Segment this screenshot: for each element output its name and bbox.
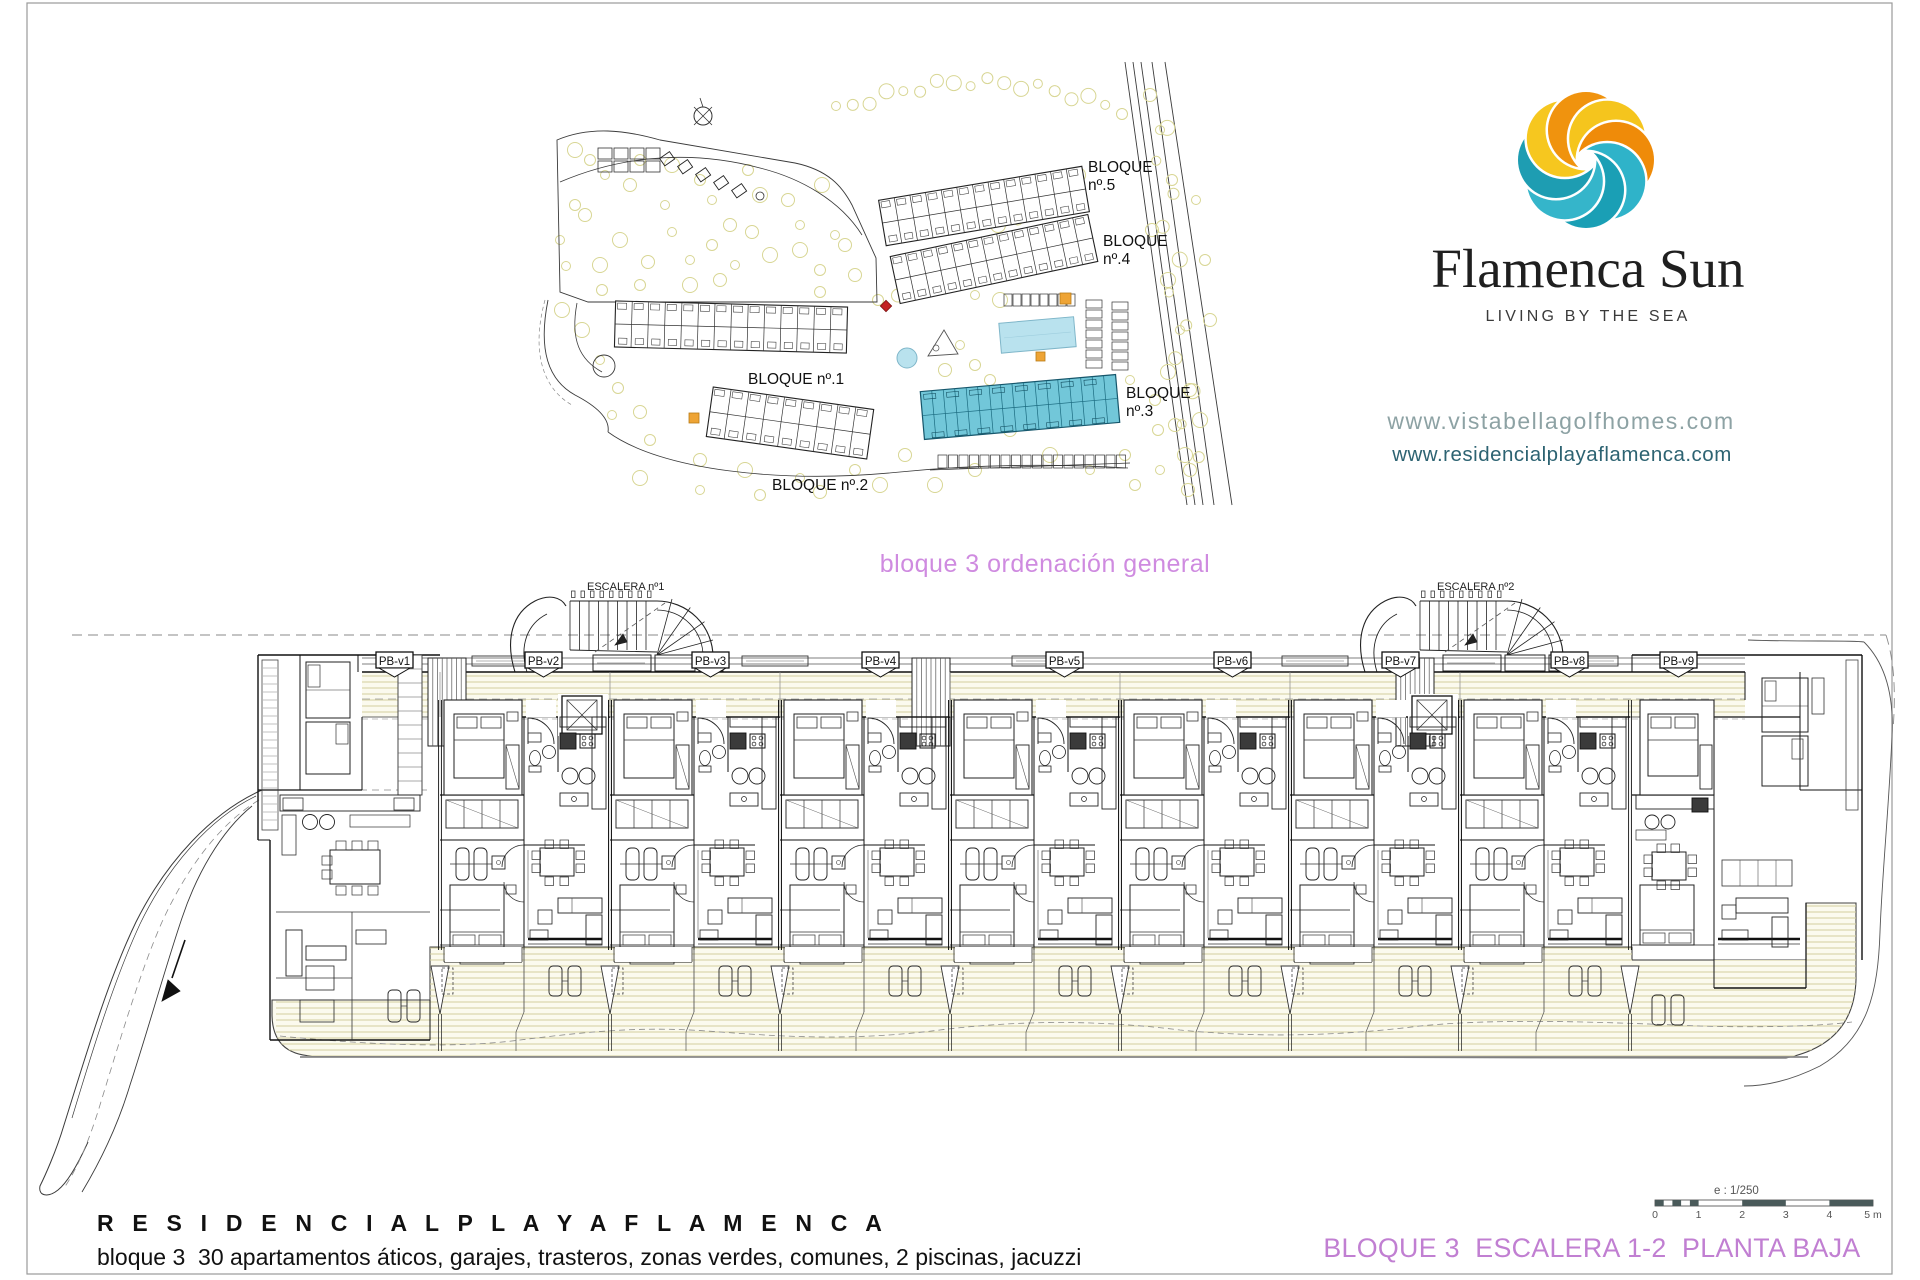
svg-text:0: 0 [1652,1209,1658,1221]
svg-text:5 m: 5 m [1864,1209,1882,1221]
svg-text:BLOQUE: BLOQUE [1126,385,1191,402]
svg-text:PB-v4: PB-v4 [865,656,897,668]
svg-text:www.vistabellagolfhomes.com: www.vistabellagolfhomes.com [1386,408,1734,434]
svg-text:PB-v6: PB-v6 [1217,656,1248,668]
svg-text:PB-v3: PB-v3 [695,656,726,668]
svg-text:PB-v9: PB-v9 [1663,656,1694,668]
svg-text:PB-v1: PB-v1 [379,656,410,668]
svg-text:www.residencialplayaflamenca.c: www.residencialplayaflamenca.com [1391,443,1732,466]
svg-text:2: 2 [1739,1209,1745,1221]
svg-text:BLOQUE 3 ESCALERA 1-2 PLANTA: BLOQUE 3 ESCALERA 1-2 PLANTA BAJA [1323,1233,1860,1263]
svg-text:PB-v5: PB-v5 [1049,656,1080,668]
svg-text:Flamenca Sun: Flamenca Sun [1431,238,1744,299]
svg-text:1: 1 [1696,1209,1702,1221]
svg-text:e : 1/250: e : 1/250 [1714,1185,1759,1197]
svg-text:PB-v7: PB-v7 [1385,656,1416,668]
svg-text:nº.5: nº.5 [1088,177,1115,194]
svg-text:BLOQUE: BLOQUE [1088,159,1153,176]
svg-text:R E S I D E N C I A L P L A: R E S I D E N C I A L P L A Y A F L A M … [97,1210,888,1236]
svg-text:PB-v2: PB-v2 [528,656,559,668]
svg-text:ESCALERA nº1: ESCALERA nº1 [587,581,664,593]
svg-text:BLOQUE nº.1: BLOQUE nº.1 [748,371,844,388]
svg-text:4: 4 [1826,1209,1832,1221]
svg-text:PB-v8: PB-v8 [1554,656,1585,668]
svg-text:bloque 3 30 apartamentos átic: bloque 3 30 apartamentos áticos, garajes… [97,1244,1081,1270]
svg-text:BLOQUE: BLOQUE [1103,233,1168,250]
svg-text:LIVING BY THE SEA: LIVING BY THE SEA [1486,308,1691,325]
svg-text:bloque 3 ordenación general: bloque 3 ordenación general [880,550,1210,578]
svg-text:nº.4: nº.4 [1103,251,1131,268]
svg-text:3: 3 [1783,1209,1789,1221]
svg-text:nº.3: nº.3 [1126,403,1153,420]
svg-text:ESCALERA nº2: ESCALERA nº2 [1437,581,1514,593]
svg-text:BLOQUE nº.2: BLOQUE nº.2 [772,477,868,494]
